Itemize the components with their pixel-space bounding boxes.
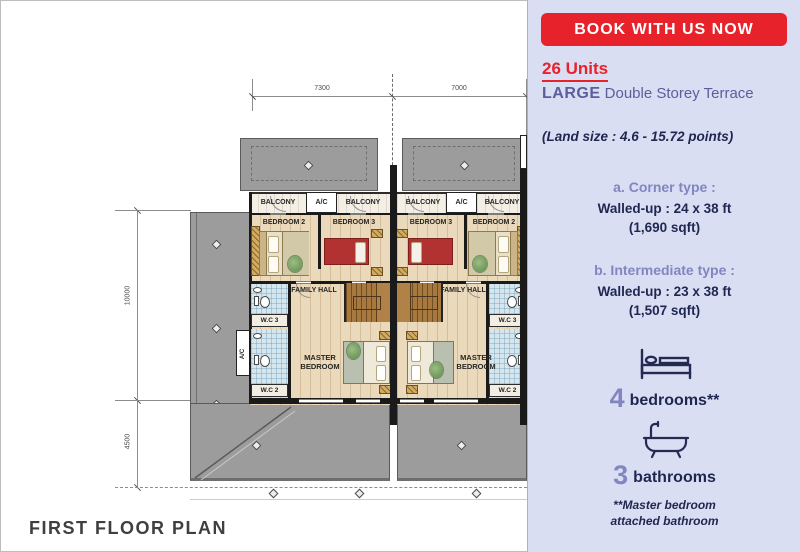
balcony-label: BALCONY	[252, 199, 304, 207]
balcony-label: BALCONY	[338, 199, 388, 207]
sink	[253, 333, 262, 339]
roof-side-strip	[190, 212, 250, 425]
book-now-button[interactable]: BOOK WITH US NOW	[541, 13, 787, 46]
balcony-door-gap	[270, 213, 286, 215]
staircase	[344, 283, 390, 322]
balcony-label: BALCONY	[399, 199, 447, 207]
bed-pillow	[411, 346, 421, 362]
balcony-label: BALCONY	[478, 199, 526, 207]
master-bedroom-label: MASTER BEDROOM	[294, 353, 346, 371]
units-count: 26 Units	[542, 59, 608, 82]
bedroom3-label: BEDROOM 3	[399, 219, 463, 227]
corner-heading: a. Corner type :	[528, 179, 800, 195]
bedrooms-count: 4	[610, 383, 625, 413]
staircase	[397, 283, 443, 322]
corner-type-block: a. Corner type : Walled-up : 24 x 38 ft …	[528, 179, 800, 237]
dim-label-4500: 4500	[125, 422, 132, 462]
balcony-door-gap	[488, 213, 504, 215]
bedrooms-feature: 4bedrooms**	[528, 383, 800, 414]
roof-vent-diamond	[212, 240, 222, 250]
plant	[288, 256, 302, 272]
bed-single-red	[408, 238, 453, 265]
type-rest: Double Storey Terrace	[601, 85, 754, 102]
balcony-door-gap	[350, 213, 366, 215]
wall-wc-divider	[486, 284, 489, 398]
balcony-door-gap	[408, 213, 424, 215]
intermediate-type-block: b. Intermediate type : Walled-up : 23 x …	[528, 262, 800, 320]
marker-diamond	[269, 489, 279, 499]
dim-label-7300: 7300	[252, 85, 392, 92]
bed-pillow	[498, 256, 509, 273]
footnote-line2: attached bathroom	[528, 513, 800, 529]
toilet	[507, 296, 517, 308]
bedside-table	[396, 267, 408, 276]
floor-plan: 7300 7000 10000 4500 A/C	[0, 0, 527, 552]
wall-bedroom-divider	[318, 215, 321, 269]
stair-rail	[410, 296, 438, 310]
bed-single-red	[324, 238, 369, 265]
family-hall-label: FAMILY HALL	[285, 287, 343, 295]
bed-pillow	[376, 346, 386, 362]
roof-vent-diamond	[212, 324, 222, 334]
bed-headboard	[260, 232, 267, 275]
dim-ext-h	[115, 210, 191, 211]
roof-hip-lines	[191, 404, 391, 482]
bed-pillow	[268, 236, 279, 253]
stair-rail	[353, 296, 381, 310]
end-wall	[520, 169, 527, 425]
corner-size: Walled-up : 24 x 38 ft	[528, 199, 800, 218]
dim-ext-h	[115, 400, 191, 401]
ac-closet: A/C	[446, 192, 477, 213]
dim-line-top	[252, 96, 526, 97]
toilet	[260, 355, 270, 367]
bedside-table	[371, 267, 383, 276]
window	[356, 399, 380, 403]
corner-sqft: (1,690 sqft)	[528, 218, 800, 237]
wc3-room	[251, 284, 288, 314]
bed-pillow	[411, 365, 421, 381]
roof-top-left	[240, 138, 378, 191]
plant	[430, 362, 443, 378]
sink	[253, 287, 262, 293]
marker-diamond	[355, 489, 365, 499]
bathrooms-feature: 3bathrooms	[528, 460, 800, 491]
toilet	[507, 355, 517, 367]
bedside-table	[406, 385, 418, 394]
footnote: **Master bedroom attached bathroom	[528, 497, 800, 529]
side-ac-ledge: A/C	[236, 330, 250, 376]
bed-pillow	[355, 242, 366, 263]
marketing-panel: BOOK WITH US NOW 26 Units LARGE Double S…	[527, 0, 800, 552]
wall-wc-divider	[288, 284, 291, 398]
bed-pillow	[376, 365, 386, 381]
bedside-table	[406, 331, 418, 340]
dim-label-10000: 10000	[125, 276, 132, 316]
land-size: (Land size : 4.6 - 15.72 points)	[542, 129, 733, 144]
bed-pillow	[498, 236, 509, 253]
bed-double	[259, 231, 309, 276]
toilet	[260, 296, 270, 308]
end-wall-hollow	[520, 135, 527, 169]
type-bold: LARGE	[542, 85, 601, 102]
marker-diamond	[472, 489, 482, 499]
bedside-table	[396, 229, 408, 238]
intermediate-sqft: (1,507 sqft)	[528, 301, 800, 320]
plan-title: FIRST FLOOR PLAN	[29, 518, 227, 539]
bedrooms-label: bedrooms**	[630, 392, 720, 409]
bed-pillow	[268, 256, 279, 273]
intermediate-heading: b. Intermediate type :	[528, 262, 800, 278]
roof-vent-diamond	[457, 441, 467, 451]
bedside-table	[371, 229, 383, 238]
type-line: LARGE Double Storey Terrace	[542, 85, 754, 103]
intermediate-size: Walled-up : 23 x 38 ft	[528, 282, 800, 301]
footnote-line1: **Master bedroom	[528, 497, 800, 513]
roof-edge-line	[196, 213, 197, 424]
party-wall	[390, 165, 397, 425]
toilet	[254, 355, 259, 365]
bathtub-icon	[641, 420, 691, 465]
window	[400, 399, 424, 403]
bathrooms-count: 3	[613, 460, 628, 490]
window	[299, 399, 343, 403]
wall-bedroom-divider	[464, 215, 467, 269]
boundary-dashed-line	[115, 487, 527, 488]
ac-label: A/C	[307, 199, 336, 207]
stair-landing	[397, 283, 411, 322]
ac-closet: A/C	[306, 192, 337, 213]
ac-label: A/C	[447, 199, 476, 207]
bed-icon	[638, 347, 694, 386]
wc3-label: W.C 3	[251, 314, 288, 327]
bed-headboard	[510, 232, 517, 275]
toilet	[254, 296, 259, 306]
side-ac-label: A/C	[239, 339, 247, 369]
wc2-room	[251, 329, 288, 384]
plant	[347, 343, 360, 359]
bedroom3-label: BEDROOM 3	[322, 219, 386, 227]
wc2-label: W.C 2	[251, 384, 288, 397]
plant	[473, 256, 487, 272]
bed-pillow	[411, 242, 422, 263]
dim-line-left	[137, 210, 138, 487]
bedroom2-label: BEDROOM 2	[252, 219, 316, 227]
bathrooms-label: bathrooms	[633, 469, 716, 486]
window	[434, 399, 478, 403]
bed-master	[407, 341, 454, 384]
porch-roof-left	[190, 403, 390, 481]
porch-roof-right	[397, 403, 527, 481]
master-bedroom-label: MASTER BEDROOM	[450, 353, 502, 371]
dim-label-7000: 7000	[392, 85, 526, 92]
roof-top-right	[402, 138, 526, 191]
plan-bottom-line	[190, 499, 527, 500]
